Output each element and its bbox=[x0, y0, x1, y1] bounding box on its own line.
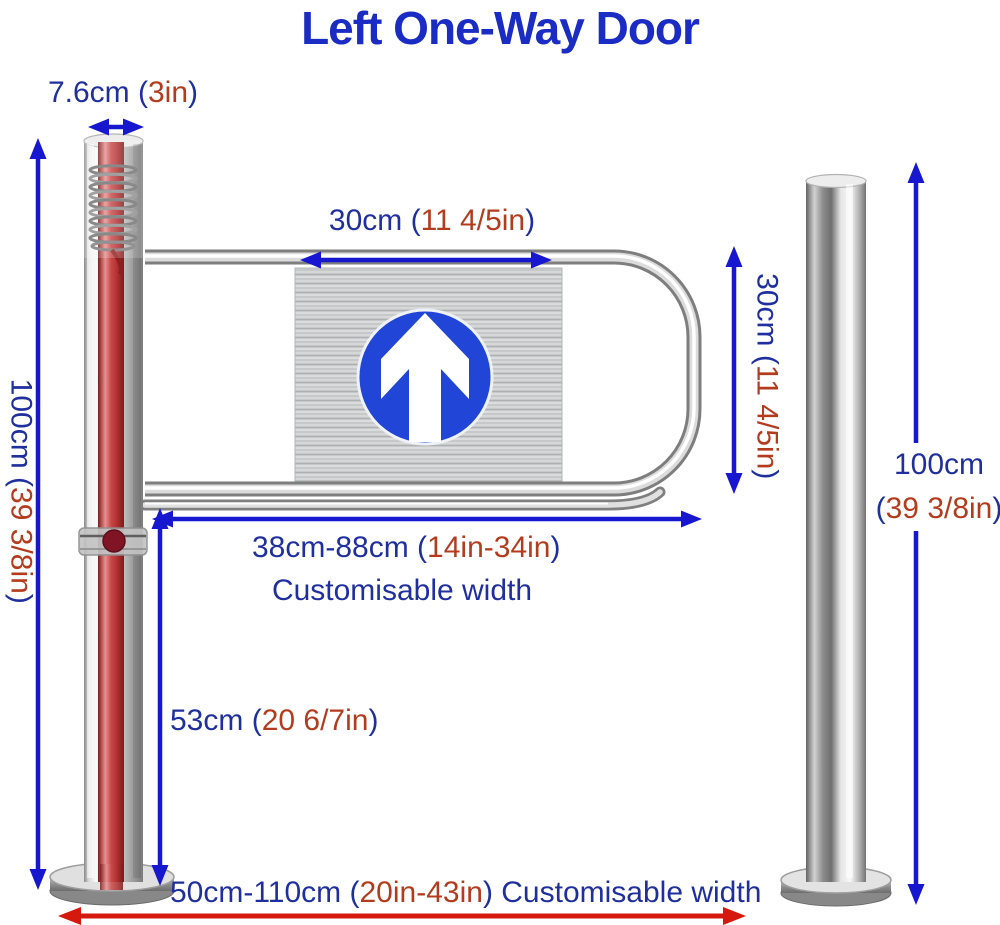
arm-clearance-imperial: 20 6/7in bbox=[262, 704, 369, 737]
arm-width-arrow bbox=[152, 511, 702, 528]
sign-width-metric: 30cm ( bbox=[329, 204, 421, 237]
sign-height-imperial: 11 4/5in bbox=[750, 365, 783, 470]
arm-width-label: 38cm-88cm (14in-34in) bbox=[252, 531, 552, 566]
right-pole-body bbox=[806, 180, 866, 882]
post-height-label: 100cm (39 3/8in) bbox=[3, 331, 38, 651]
collar-knob bbox=[103, 530, 125, 552]
sign-height-metric: 30cm ( bbox=[750, 273, 783, 365]
total-width-metric: 50cm-110cm ( bbox=[170, 876, 360, 909]
post-width-metric: 7.6cm ( bbox=[48, 76, 148, 109]
sign-width-imperial: 11 4/5in bbox=[421, 204, 526, 237]
arm-width-imperial: 14in-34in bbox=[427, 531, 550, 564]
arm-clearance-label: 53cm (20 6/7in) bbox=[170, 704, 378, 739]
right-pole bbox=[781, 175, 891, 907]
post-height-imperial: 39 3/8in bbox=[4, 487, 37, 594]
sign-width-label: 30cm (11 4/5in) bbox=[302, 204, 562, 239]
pole-height-arrow bbox=[908, 162, 925, 905]
sensor-collar bbox=[79, 528, 147, 555]
post-height-metric: 100cm ( bbox=[4, 379, 37, 487]
sign-height-arrow bbox=[726, 246, 743, 494]
post-width-imperial: 3in bbox=[148, 76, 188, 109]
page-title: Left One-Way Door bbox=[0, 1, 1000, 55]
gate-illustration bbox=[0, 0, 1000, 925]
pole-height-label-metric: 100cm bbox=[864, 448, 1000, 483]
arm-clearance-metric: 53cm ( bbox=[170, 704, 262, 737]
product-dimension-diagram: Left One-Way Door 7.6cm (3in) 30cm (11 4… bbox=[0, 0, 1000, 925]
sign-panel bbox=[295, 268, 562, 481]
dimension-arrows bbox=[30, 119, 925, 925]
arm-width-note: Customisable width bbox=[252, 574, 552, 609]
post-width-arrow bbox=[88, 119, 144, 136]
arm-clearance-arrow bbox=[152, 508, 169, 886]
post-width-label: 7.6cm (3in) bbox=[33, 76, 213, 111]
arm-width-metric: 38cm-88cm ( bbox=[252, 531, 427, 564]
total-width-imperial: 20in-43in bbox=[360, 876, 483, 909]
pole-height-label-imperial: (39 3/8in) bbox=[864, 492, 1000, 527]
sign-height-label: 30cm (11 4/5in) bbox=[749, 226, 784, 526]
total-width-label: 50cm-110cm (20in-43in) Customisable widt… bbox=[170, 876, 761, 911]
